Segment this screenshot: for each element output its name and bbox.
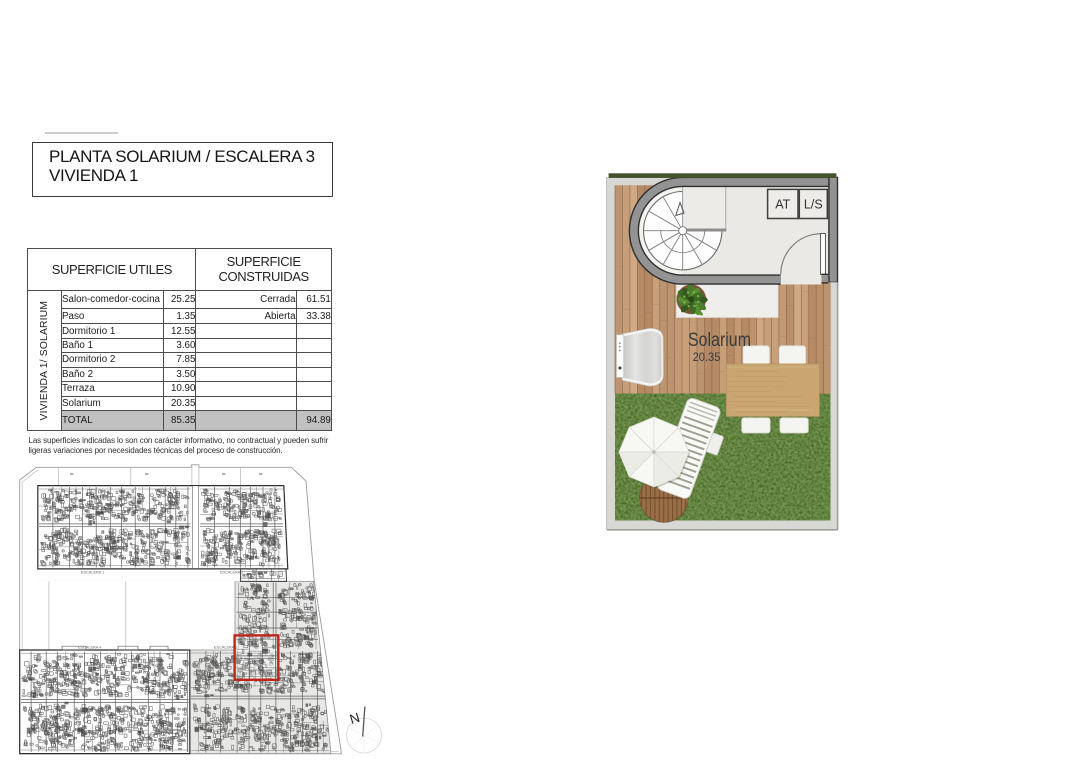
svg-text:ESCALERA 1: ESCALERA 1: [81, 571, 104, 575]
svg-text:ESCALERA 2: ESCALERA 2: [220, 571, 243, 575]
svg-text:ESCALERA 4: ESCALERA 4: [78, 646, 101, 650]
svg-text:Solarium: Solarium: [688, 330, 751, 351]
svg-text:L/S: L/S: [804, 198, 823, 212]
svg-text:AT: AT: [775, 198, 790, 212]
svg-text:20.35: 20.35: [693, 350, 721, 364]
